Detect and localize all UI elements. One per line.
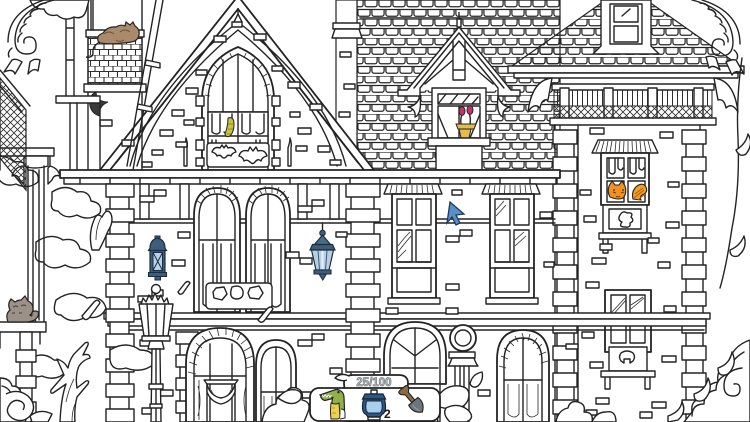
svg-text:2: 2: [384, 407, 391, 421]
